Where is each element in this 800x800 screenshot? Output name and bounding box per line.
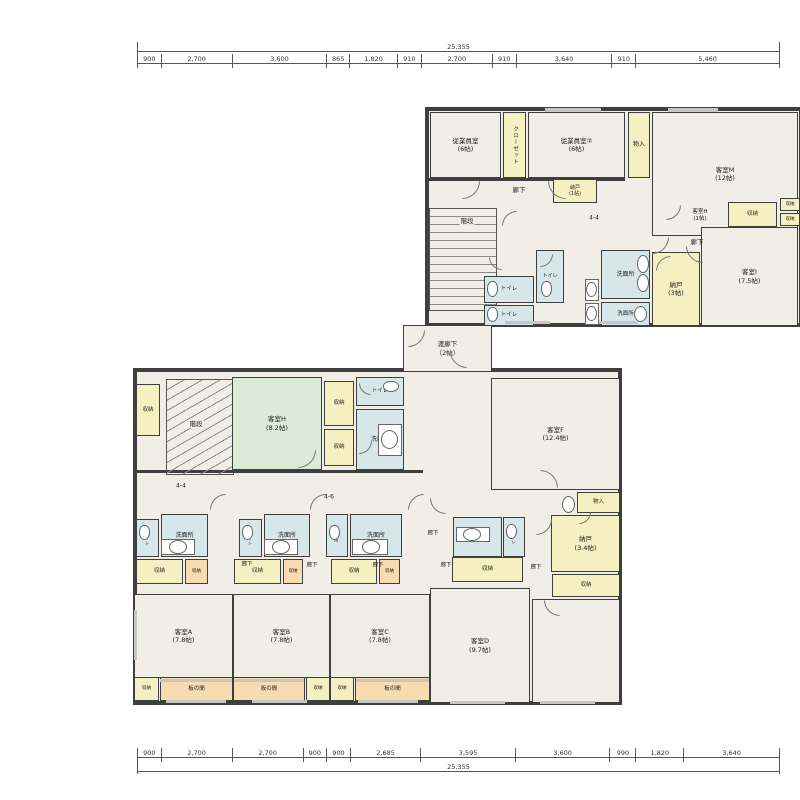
- dimension-segment: 900: [137, 54, 161, 68]
- room-shuno-c1: 収納: [331, 559, 377, 584]
- sink-fixture: [362, 540, 380, 554]
- dimension-segment: 900: [326, 748, 350, 762]
- dimension-segment: 900: [303, 748, 327, 762]
- dimension-segment-label: 900: [143, 55, 155, 63]
- room-guest-room-C: 客室C (7.8帖): [330, 594, 430, 678]
- room-guest-room-D: 客室D (9.7帖): [430, 588, 530, 703]
- dimension-segment-label: 910: [498, 55, 510, 63]
- floor-plan: 従業員室 (6帖)クローゼット従業員室② (6帖)物入客室M (12帖)納戸 (…: [0, 0, 800, 800]
- dimension-segment: 1,820: [349, 54, 397, 68]
- dimension-segment: 910: [492, 54, 516, 68]
- dimension-segment-label: 3,640: [722, 749, 741, 757]
- room-shuno-a3: 収納: [134, 677, 159, 701]
- window-mark: [134, 610, 137, 660]
- dimension-segment: 900: [137, 748, 161, 762]
- annotation: 4-6: [324, 493, 334, 501]
- dimension-segment-label: 900: [332, 749, 344, 757]
- dimension-segment-label: 2,700: [187, 749, 206, 757]
- dimension-segment: 5,460: [635, 54, 779, 68]
- window-mark: [668, 108, 718, 112]
- room-shuno-h-1: 収納: [324, 381, 354, 426]
- annotation: 階段: [460, 217, 475, 225]
- window-mark: [545, 108, 601, 112]
- dimension-segment: 3,595: [420, 748, 514, 762]
- annotation: 廊下: [306, 563, 317, 570]
- dimension-segment-label: 2,700: [447, 55, 466, 63]
- dimension-segment-label: 910: [618, 55, 630, 63]
- dimension-segment-label: 3,600: [270, 55, 289, 63]
- annotation: 客室H (1帖): [692, 209, 707, 223]
- room-guest-room-F: 客室F (12.4帖): [491, 378, 620, 490]
- toilet-fixture: [383, 381, 399, 392]
- toilet-fixture: [242, 525, 253, 540]
- annotation: 廊下: [513, 186, 526, 194]
- annotation: 廊下: [241, 562, 252, 569]
- annotation: 廊下: [691, 238, 704, 246]
- dimension-segment-label: 1,820: [364, 55, 383, 63]
- sink-fixture: [381, 430, 398, 449]
- dimension-segment-label: 2,700: [187, 55, 206, 63]
- window-mark: [450, 701, 505, 704]
- annotation: 廊下: [372, 563, 383, 570]
- room-guest-room-B: 客室B (7.8帖): [233, 594, 330, 678]
- toilet-fixture: [541, 281, 552, 297]
- window-mark: [358, 700, 418, 703]
- dimension-segments-bottom: 9002,7002,7009009002,6853,5953,6009901,8…: [137, 748, 780, 762]
- dimension-segment: 2,700: [161, 748, 232, 762]
- sink-fixture: [637, 274, 649, 292]
- dimension-segment-label: 2,700: [258, 749, 277, 757]
- dimension-segment: 2,685: [350, 748, 421, 762]
- room-monoire-upper: 物入: [628, 112, 650, 178]
- window-mark: [356, 679, 429, 682]
- toilet-fixture: [487, 281, 498, 297]
- room-shuno-left: 収納: [136, 384, 160, 436]
- floor-plan-page: { "colors": { "cream": "#f0eee7", "yello…: [0, 0, 800, 800]
- dimension-segment: 2,700: [161, 54, 232, 68]
- room-shuno-nando: 収納: [552, 574, 620, 597]
- room-shuno-c3: 収納: [330, 677, 354, 701]
- sink-fixture: [562, 496, 575, 513]
- dimension-segment: 2,700: [232, 748, 303, 762]
- room-closet-strip: クローゼット: [503, 112, 526, 178]
- dimension-segment: 3,600: [232, 54, 327, 68]
- dimension-line-bottom: 9002,7002,7009009002,6853,5953,6009901,8…: [137, 748, 780, 774]
- window-mark: [505, 321, 550, 324]
- dimension-total-top-label: 25,355: [447, 43, 470, 51]
- sink-fixture: [272, 540, 290, 554]
- annotation: 廊下: [530, 565, 541, 572]
- room-shuno-a2: 収納: [185, 559, 208, 584]
- dimension-segment: 3,600: [515, 748, 610, 762]
- dimension-line-top: 25,355 9002,7003,6008651,8209102,7009103…: [137, 42, 780, 68]
- dimension-segment: 3,640: [516, 54, 612, 68]
- dimension-segment: 910: [397, 54, 421, 68]
- dimension-segment-label: 5,460: [698, 55, 717, 63]
- dimension-rule: [138, 51, 779, 52]
- sink-fixture: [169, 540, 187, 554]
- annotation: 階段: [189, 420, 204, 428]
- dimension-segment-label: 1,820: [651, 749, 670, 757]
- dimension-total-bottom-label: 25,355: [447, 763, 470, 771]
- dimension-segment-label: 910: [403, 55, 415, 63]
- toilet-fixture: [487, 307, 498, 322]
- dimension-segment: 990: [609, 748, 635, 762]
- room-monoire-lower: 物入: [577, 492, 620, 513]
- room-staff-room-1: 従業員室 (6帖): [430, 112, 501, 178]
- sink-fixture: [586, 282, 597, 297]
- room-shuno-h-2: 収納: [324, 429, 354, 466]
- dimension-segment-label: 3,595: [459, 749, 478, 757]
- window-mark: [234, 679, 304, 682]
- room-nando-34: 納戸 (3.4帖): [551, 515, 620, 572]
- dimension-segment: 2,700: [421, 54, 492, 68]
- annotation: 廊下: [440, 563, 451, 570]
- room-guest-room-A: 客室A (7.8帖): [134, 594, 233, 678]
- dimension-segments-top: 9002,7003,6008651,8209102,7009103,640910…: [137, 54, 780, 68]
- window-mark: [598, 321, 638, 324]
- room-shuno-edge-2: 収納: [780, 213, 800, 226]
- dimension-segment-label: 3,640: [555, 55, 574, 63]
- room-shuno-d1: 収納: [452, 557, 523, 582]
- toilet-fixture: [506, 524, 517, 539]
- dimension-rule: [138, 771, 779, 772]
- dimension-segment-label: 3,600: [553, 749, 572, 757]
- sink-fixture: [586, 306, 597, 321]
- room-guest-room-unlabeled: [532, 599, 620, 703]
- sink-fixture: [463, 528, 481, 541]
- dimension-segment: 910: [611, 54, 635, 68]
- dimension-segment: 865: [326, 54, 349, 68]
- room-shuno-a1: 収納: [136, 559, 183, 584]
- window-mark: [160, 679, 232, 682]
- room-shuno-edge-1: 収納: [780, 198, 800, 211]
- dimension-segment: 1,820: [635, 748, 683, 762]
- dimension-total-top: 25,355: [137, 42, 780, 54]
- room-shuno-upper: 収納: [728, 202, 777, 227]
- dimension-segment: 3,640: [683, 748, 779, 762]
- dimension-total-bottom: 25,355: [137, 762, 780, 774]
- sink-fixture: [634, 306, 647, 322]
- room-shuno-b3: 収納: [306, 677, 330, 701]
- window-mark: [540, 701, 595, 704]
- annotation: 4-4: [589, 214, 599, 222]
- sink-fixture: [637, 255, 649, 273]
- window-mark: [166, 700, 226, 703]
- window-mark: [252, 700, 307, 703]
- room-guest-room-I: 客室I (7.5帖): [701, 227, 798, 326]
- toilet-fixture: [139, 525, 150, 540]
- dimension-segment-label: 900: [143, 749, 155, 757]
- dimension-segment-label: 865: [332, 55, 344, 63]
- annotation: 廊下: [427, 531, 438, 538]
- room-staff-room-2: 従業員室② (6帖): [528, 112, 625, 178]
- dimension-segment-label: 990: [617, 749, 629, 757]
- room-shuno-b2: 収納: [283, 559, 303, 584]
- dimension-segment-label: 900: [309, 749, 321, 757]
- annotation: 4-4: [176, 482, 186, 490]
- dimension-segment-label: 2,685: [376, 749, 395, 757]
- toilet-fixture: [329, 525, 340, 540]
